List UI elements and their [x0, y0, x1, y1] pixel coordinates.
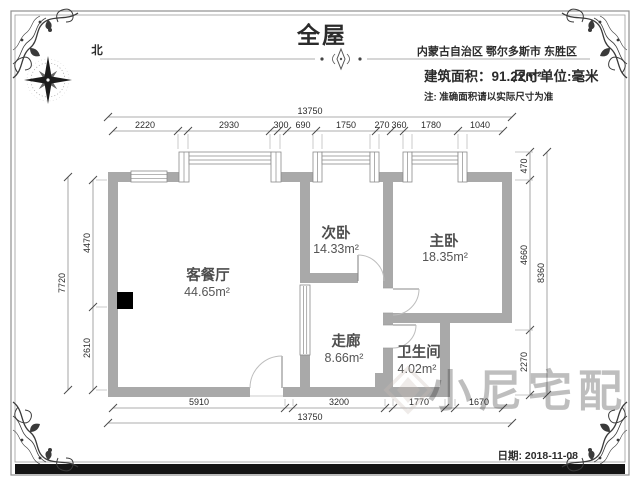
dim-label: 2220: [135, 120, 155, 130]
corner-ornament-icon: [562, 9, 627, 78]
room-labels: 客餐厅 44.65m² 次卧 14.33m² 主卧 18.35m² 走廊 8.6…: [184, 224, 468, 376]
bay-window: [403, 152, 467, 182]
corner-ornament-icon: [13, 402, 78, 471]
entry-door-swing: [250, 356, 283, 396]
dim-label: 470: [519, 158, 529, 173]
dim-label: 270: [374, 120, 389, 130]
structural-column: [117, 292, 133, 309]
bay-window: [179, 152, 281, 182]
dim-label: 8360: [536, 263, 546, 283]
dimension-right: 470 4660 2270 8360: [515, 148, 551, 399]
dim-label: 1780: [421, 120, 441, 130]
room-area-master: 18.35m²: [422, 250, 468, 264]
wall: [108, 387, 250, 397]
wall: [383, 313, 393, 325]
cased-opening: [300, 285, 310, 355]
bay-window: [313, 152, 379, 182]
wall: [383, 172, 393, 288]
wall: [375, 373, 383, 387]
dim-label: 690: [295, 120, 310, 130]
dim-label: 5910: [189, 397, 209, 407]
room-name-bathroom: 卫生间: [397, 343, 441, 361]
floorplan-sheet: 全屋 内蒙古自治区 鄂尔多斯市 东胜区 建筑面积：91.22m² 尺寸单位:毫米…: [0, 0, 640, 480]
dim-label: 2610: [82, 338, 92, 358]
page-title: 全屋: [296, 22, 347, 48]
windows: [131, 152, 467, 355]
wall: [390, 313, 512, 323]
master-door-swing: [383, 288, 419, 315]
room-name-corridor: 走廊: [332, 332, 361, 350]
dimension-top: 13750 2220 2930 300 690 1750 270 360 178…: [104, 106, 516, 149]
dim-label: 13750: [297, 106, 322, 116]
dim-label: 3200: [329, 397, 349, 407]
watermark-text: 小尼宅配: [428, 367, 628, 416]
dim-label: 1040: [470, 120, 490, 130]
wall: [300, 172, 310, 273]
dim-label: 7720: [57, 273, 67, 293]
wall: [502, 172, 512, 323]
room-name-living: 客餐厅: [185, 266, 230, 284]
footer-bar: [15, 464, 625, 474]
floor-plan-walls: [108, 172, 512, 397]
corner-ornament-icon: [13, 9, 78, 78]
unit-label: 尺寸单位:毫米: [513, 68, 599, 84]
room-name-bedroom2: 次卧: [322, 224, 351, 242]
region-label: 内蒙古自治区 鄂尔多斯市 东胜区: [417, 44, 577, 58]
dimension-left: 4470 2610 7720: [57, 173, 107, 394]
dim-label: 1750: [336, 120, 356, 130]
accuracy-note: 注: 准确面积请以实际尺寸为准: [424, 91, 554, 103]
room-name-master: 主卧: [430, 232, 459, 250]
wall: [300, 355, 310, 387]
room-area-corridor: 8.66m²: [325, 351, 364, 365]
dim-label: 300: [273, 120, 288, 130]
divider-ornament-icon: [333, 49, 350, 69]
wall: [108, 172, 118, 397]
dim-label: 4470: [82, 233, 92, 253]
room-area-living: 44.65m²: [184, 285, 230, 299]
dim-label: 2930: [219, 120, 239, 130]
date-label: 日期: 2018-11-08: [497, 449, 578, 462]
dim-label: 360: [391, 120, 406, 130]
wall: [300, 273, 358, 283]
dim-label: 4660: [519, 245, 529, 265]
window: [131, 171, 167, 182]
room-area-bedroom2: 14.33m²: [313, 242, 359, 256]
bedroom2-door-swing: [358, 255, 384, 281]
dim-label: 13750: [297, 412, 322, 422]
north-label: 北: [91, 43, 103, 57]
